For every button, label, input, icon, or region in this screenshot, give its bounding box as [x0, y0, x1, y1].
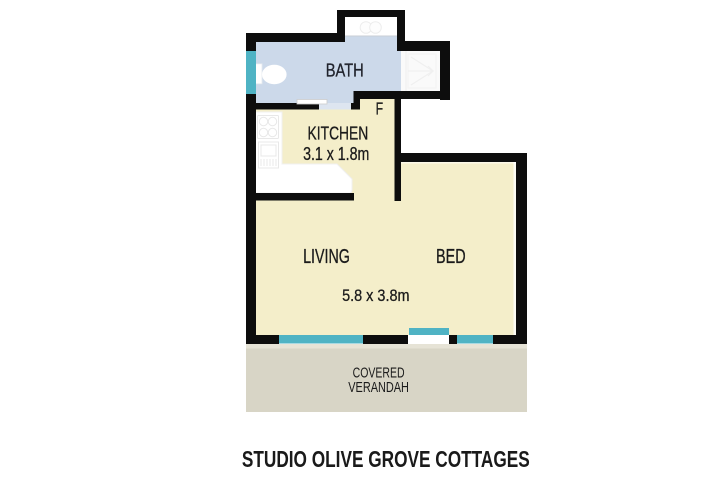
svg-text:VERANDAH: VERANDAH [348, 378, 409, 395]
svg-text:KITCHEN: KITCHEN [308, 124, 369, 144]
svg-text:BED: BED [436, 244, 466, 267]
svg-text:5.8 x 3.8m: 5.8 x 3.8m [342, 287, 409, 305]
svg-text:STUDIO OLIVE GROVE COTTAGES: STUDIO OLIVE GROVE COTTAGES [242, 448, 530, 473]
svg-text:F: F [376, 99, 383, 119]
svg-text:BATH: BATH [326, 60, 364, 81]
svg-text:3.1 x 1.8m: 3.1 x 1.8m [303, 144, 369, 164]
svg-text:LIVING: LIVING [303, 244, 350, 267]
